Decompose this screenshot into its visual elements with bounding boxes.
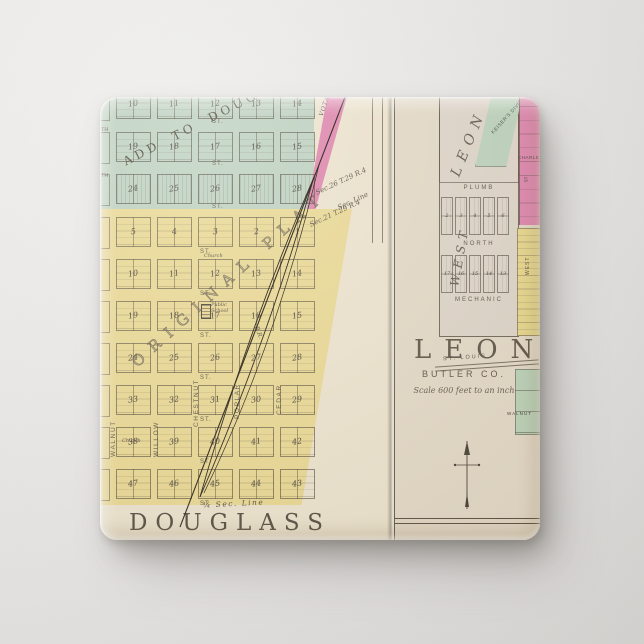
street-name-plumb: PLUMB (439, 185, 519, 191)
block: 14 (483, 255, 495, 293)
leon-county-subtitle: BUTLER CO. (401, 369, 527, 379)
leon-map-panel: PLUMB NORTH MECHANIC 23456 1716151413 LE… (394, 97, 540, 540)
block: 13 (497, 255, 509, 293)
pinback-button: 1011121314 1918171615 2425262728 54321 1… (100, 97, 540, 540)
block: 5 (483, 197, 495, 235)
plat-row: 23456 (441, 197, 509, 235)
charles-street-label: CHARLES (518, 155, 540, 160)
block: 15 (469, 255, 481, 293)
west-small-label: WEST (525, 257, 531, 275)
pink-addition-strip (519, 97, 540, 225)
compass-rose-icon (453, 435, 481, 515)
photo-background: 1011121314 1918171615 2425262728 54321 1… (0, 0, 644, 644)
douglass-map-panel: 1011121314 1918171615 2425262728 54321 1… (100, 97, 394, 540)
panel-bottom-border (395, 518, 540, 524)
st-label: ST (523, 177, 528, 183)
leon-scale-note: Scale 600 feet to an inch (397, 386, 531, 395)
yellow-addition-strip (517, 228, 540, 336)
railroad-tracks (100, 97, 394, 540)
street-name-mechanic: MECHANIC (439, 297, 519, 303)
block: 2 (441, 197, 453, 235)
block: 6 (497, 197, 509, 235)
street-name-walnut-leon: WALNUT (507, 411, 540, 416)
leon-town-title: LEON (401, 335, 527, 365)
street-name-north: NORTH (439, 241, 519, 247)
